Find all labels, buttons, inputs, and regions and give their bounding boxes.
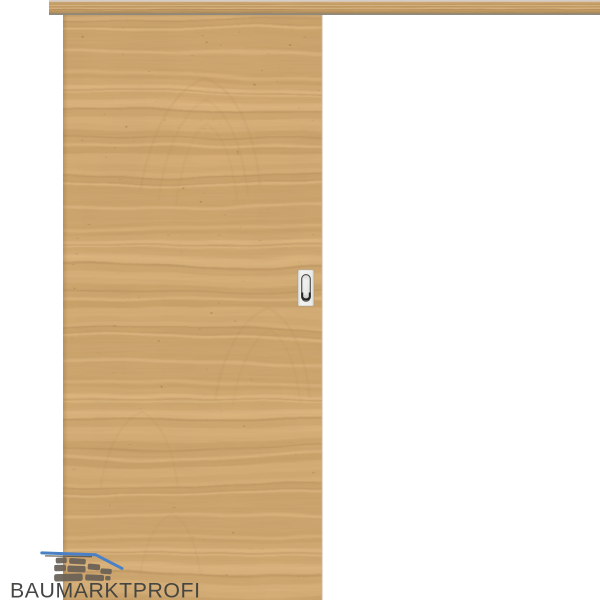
svg-text:BAUMARKTPROFI: BAUMARKTPROFI xyxy=(10,579,201,600)
